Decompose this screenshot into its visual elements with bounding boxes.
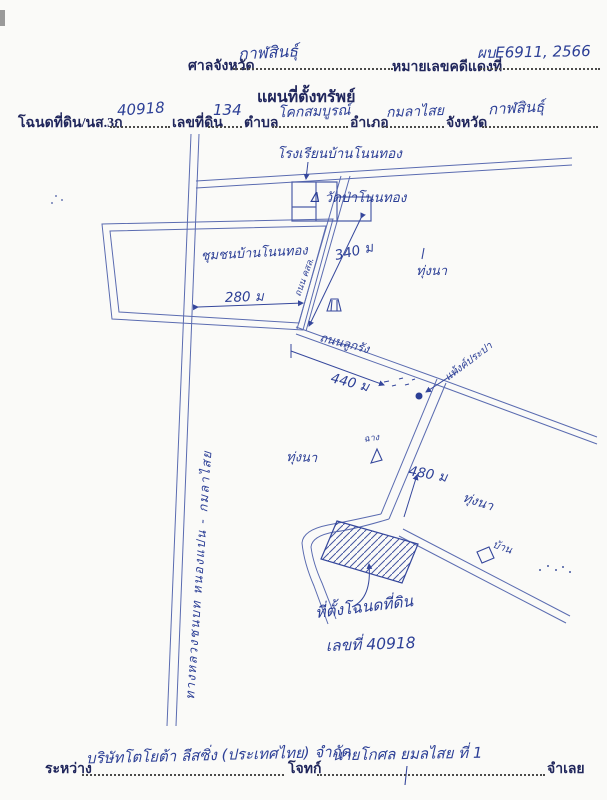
- rice-field-label: ทุ่งนา: [416, 264, 448, 279]
- house-label: บ้าน: [491, 539, 514, 557]
- village-label: ชุมชนบ้านโนนทอง: [200, 242, 309, 264]
- sketch-map: โรงเรียนบ้านโนนทอง Δ วัดป่าโนนทอง ชุมชนบ…: [0, 0, 607, 800]
- gravel-road-label: ถนนลูกรัง: [318, 330, 372, 357]
- dot-icon: [416, 393, 423, 400]
- measurements: [198, 162, 458, 607]
- scan-artifact: [0, 10, 5, 26]
- measure-480-arrow: [404, 475, 417, 517]
- rice-field-label: ทุ่งนา: [286, 450, 318, 466]
- highway-label: ทางหลวงชนบท หนองแปน - กมลาไสย: [182, 449, 214, 700]
- barn-label: ฉาง: [363, 433, 380, 445]
- distance-340-label: 340 ม: [333, 239, 376, 264]
- school-pointer-arrow: [306, 162, 308, 179]
- defendant-dotted-line: [317, 774, 545, 776]
- school-label: โรงเรียนบ้านโนนทอง: [277, 145, 403, 162]
- hut-icon: [327, 299, 341, 311]
- between-label: ระหว่าง: [45, 758, 92, 780]
- south-road-line: [381, 379, 437, 514]
- distance-480-label: 480 ม: [407, 463, 449, 486]
- measure-340: [309, 218, 361, 326]
- scatter-dots: [51, 195, 571, 573]
- small-tick: [422, 248, 424, 259]
- temple-label: Δ วัดป่าโนนทอง: [310, 189, 408, 206]
- village-outline-inner: [110, 226, 326, 323]
- southeast-road-line: [399, 536, 566, 623]
- scanned-court-map-document: { "paper": { "bg": "#fafaf8", "ink_hand"…: [0, 0, 607, 800]
- site-label-line1: ที่ตั้งโฉนดที่ดิน: [314, 589, 415, 622]
- distance-440-label: 440 ม: [329, 370, 372, 395]
- plaintiff-label: โจทก์: [288, 758, 321, 780]
- site-label-line2: เลขที่ 40918: [325, 632, 416, 655]
- rice-field-label: ทุ่งนา: [461, 491, 496, 515]
- water-tank-label: แท้งค์ประปา: [442, 338, 496, 383]
- top-road-line: [196, 165, 572, 188]
- south-road-line: [389, 383, 446, 519]
- defendant-name: นายโกศล ยมลไสย ที่ 1: [332, 741, 483, 768]
- distance-280-label: 280 ม: [225, 289, 266, 306]
- small-dashes: [384, 378, 415, 386]
- southeast-road-line: [403, 529, 570, 616]
- map-symbols: [327, 248, 494, 785]
- village-parcel: [102, 219, 333, 330]
- plaintiff-dotted-line: [82, 774, 284, 776]
- defendant-label: จำเลย: [547, 758, 585, 780]
- triangle-icon: [371, 449, 382, 463]
- gravel-road-line: [296, 334, 597, 444]
